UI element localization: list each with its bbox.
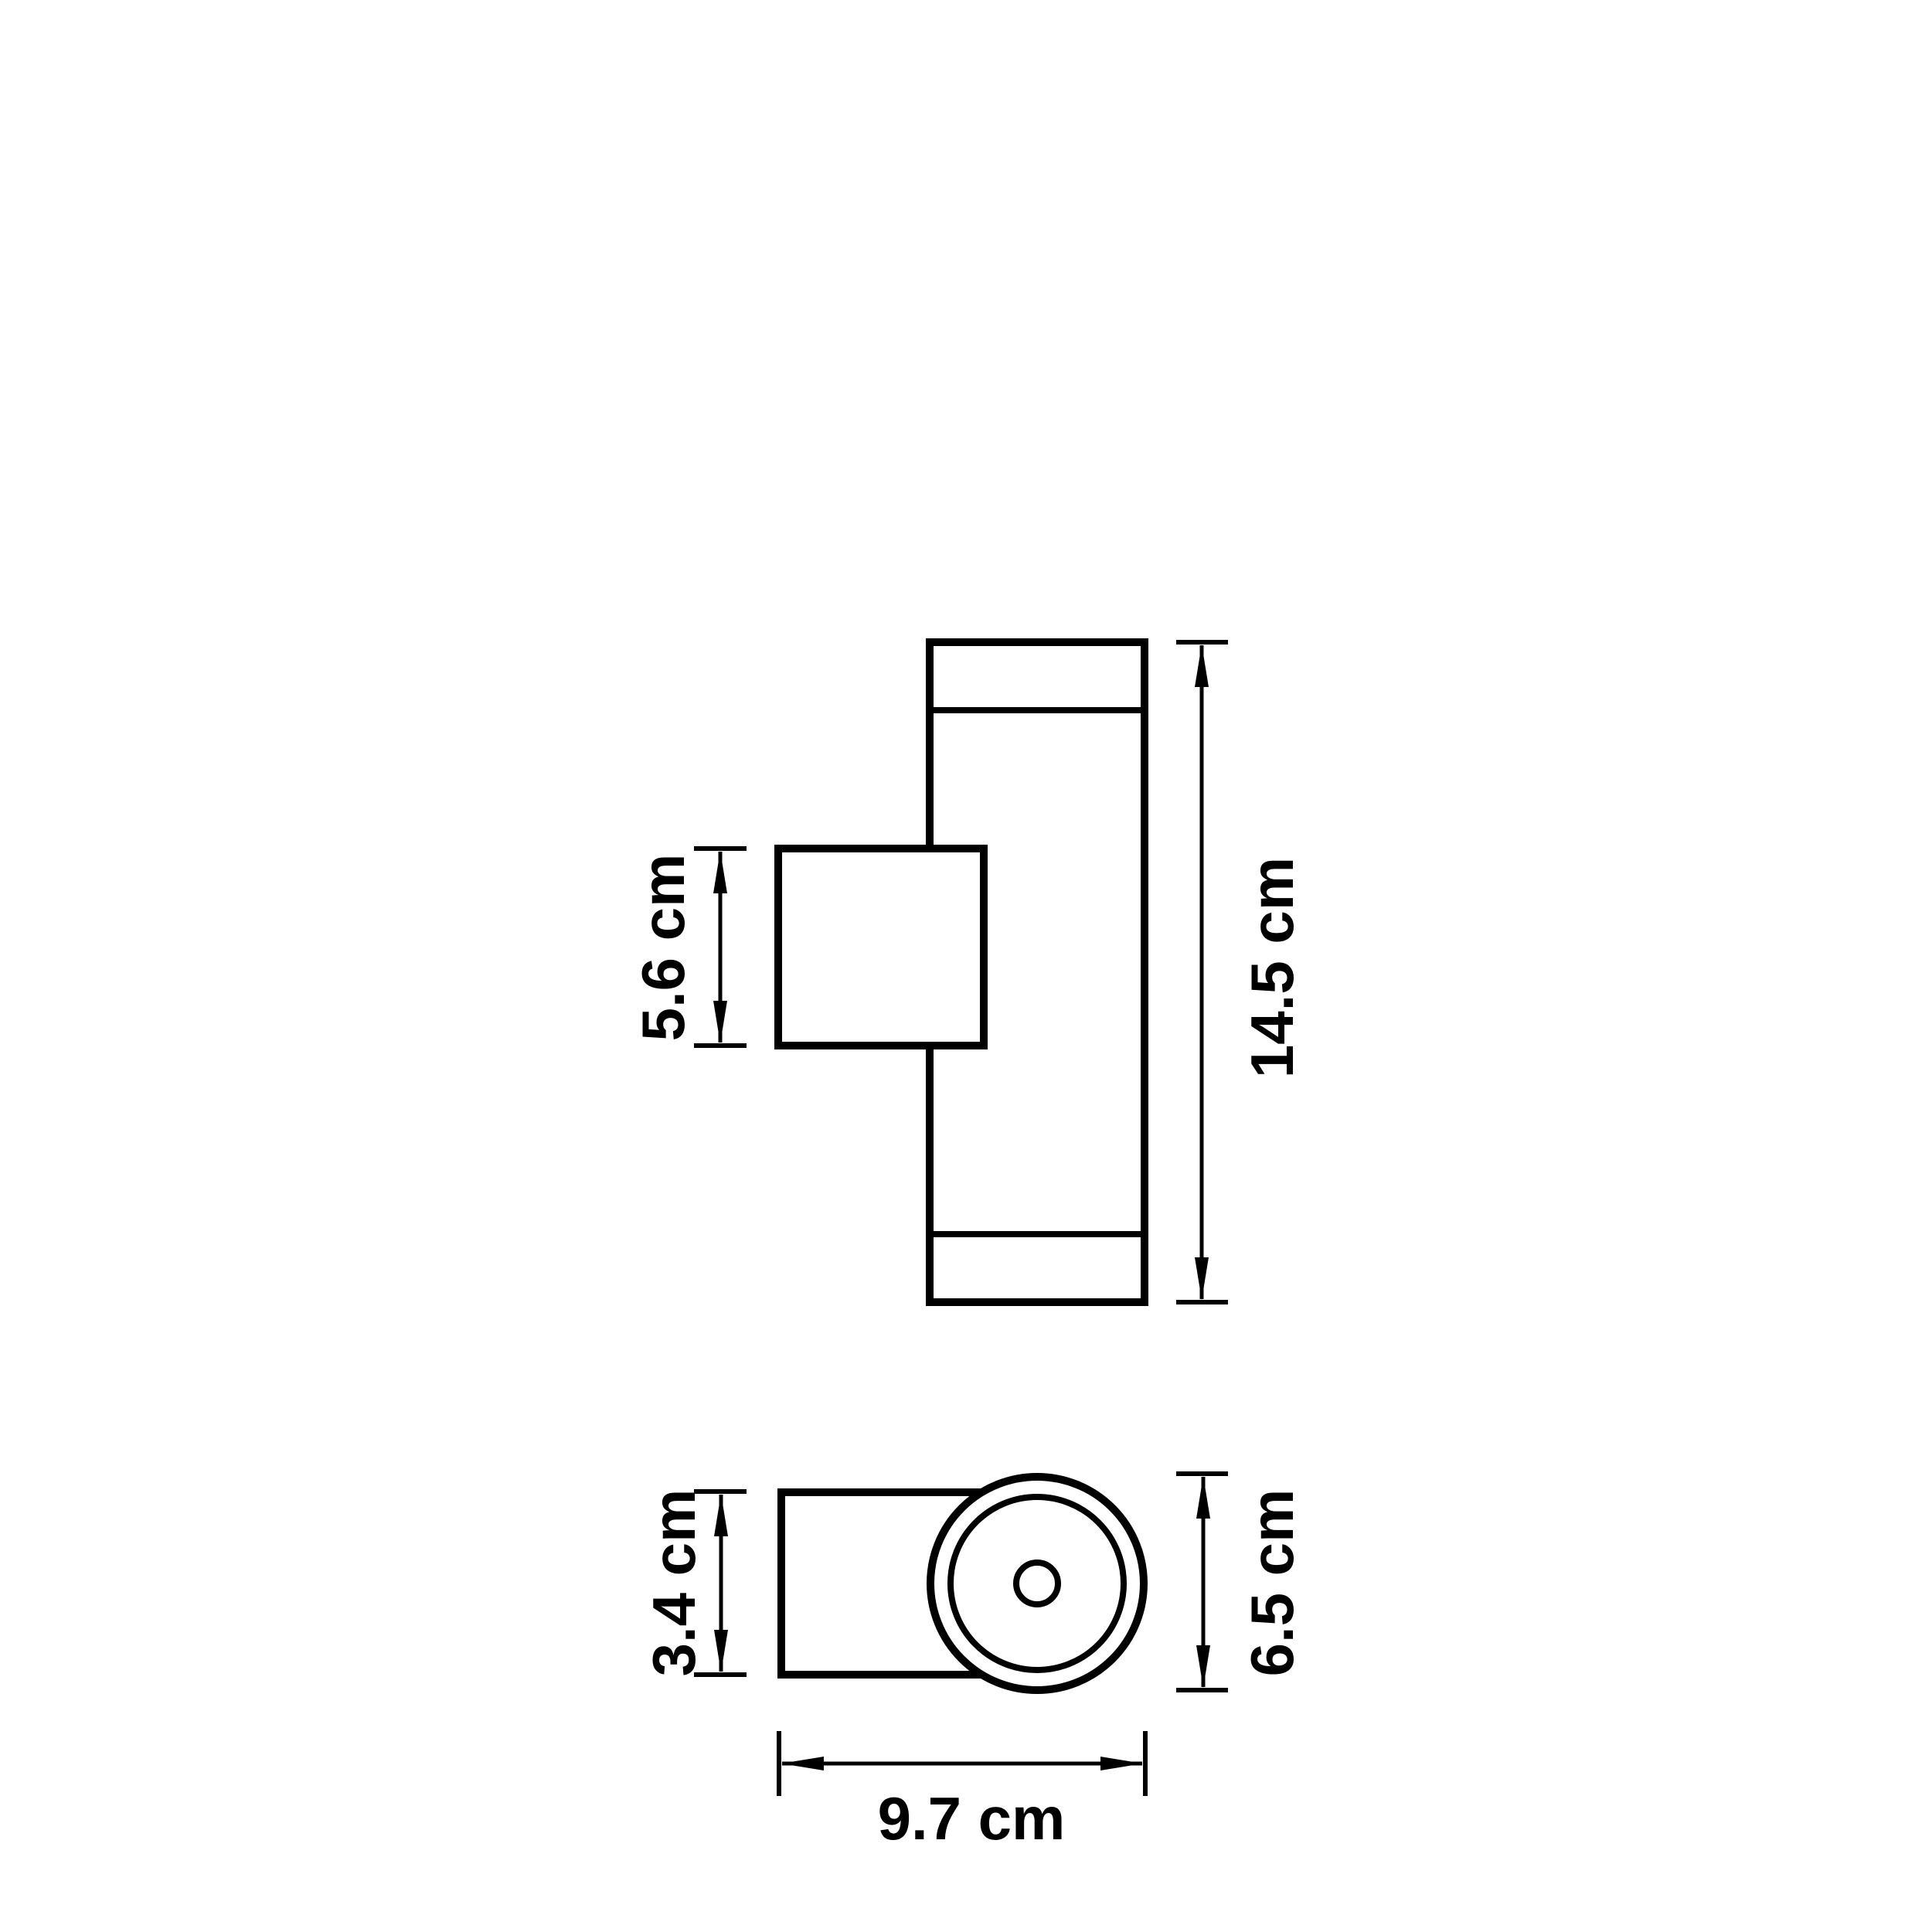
arrow-right-icon <box>1100 1757 1143 1770</box>
arrow-down-icon <box>1196 1645 1210 1688</box>
dimension-drawing-page: 5.6 cm 14.5 cm 3.4 cm <box>0 0 1932 1932</box>
dim-label-body-depth: 3.4 cm <box>640 1489 708 1677</box>
dimension-body-depth: 3.4 cm <box>640 1489 747 1677</box>
arrow-down-icon <box>713 1001 727 1043</box>
side-view <box>778 642 1145 1302</box>
dim-label-overall-width: 9.7 cm <box>878 1784 1066 1852</box>
cylinder-outer-circle <box>930 1477 1144 1690</box>
dimension-overall-width: 9.7 cm <box>779 1731 1145 1852</box>
arrow-up-icon <box>713 851 727 893</box>
top-view <box>781 1477 1144 1690</box>
arrow-up-icon <box>1196 1476 1210 1519</box>
arrow-up-icon <box>1195 645 1209 687</box>
dim-label-mount-box-height: 5.6 cm <box>629 854 697 1042</box>
dimension-overall-height: 14.5 cm <box>1176 642 1306 1302</box>
dimension-cylinder-diameter: 6.5 cm <box>1176 1474 1306 1690</box>
dimension-mount-box-height: 5.6 cm <box>629 849 747 1046</box>
arrow-down-icon <box>1195 1257 1209 1300</box>
dim-label-overall-height: 14.5 cm <box>1238 857 1306 1078</box>
dim-label-cylinder-diameter: 6.5 cm <box>1238 1489 1306 1677</box>
wall-light-dimension-drawing: 5.6 cm 14.5 cm 3.4 cm <box>0 0 1932 1932</box>
wall-mount-box-outline <box>778 849 984 1046</box>
arrow-down-icon <box>714 1630 728 1672</box>
arrow-up-icon <box>714 1494 728 1536</box>
arrow-left-icon <box>781 1757 824 1770</box>
